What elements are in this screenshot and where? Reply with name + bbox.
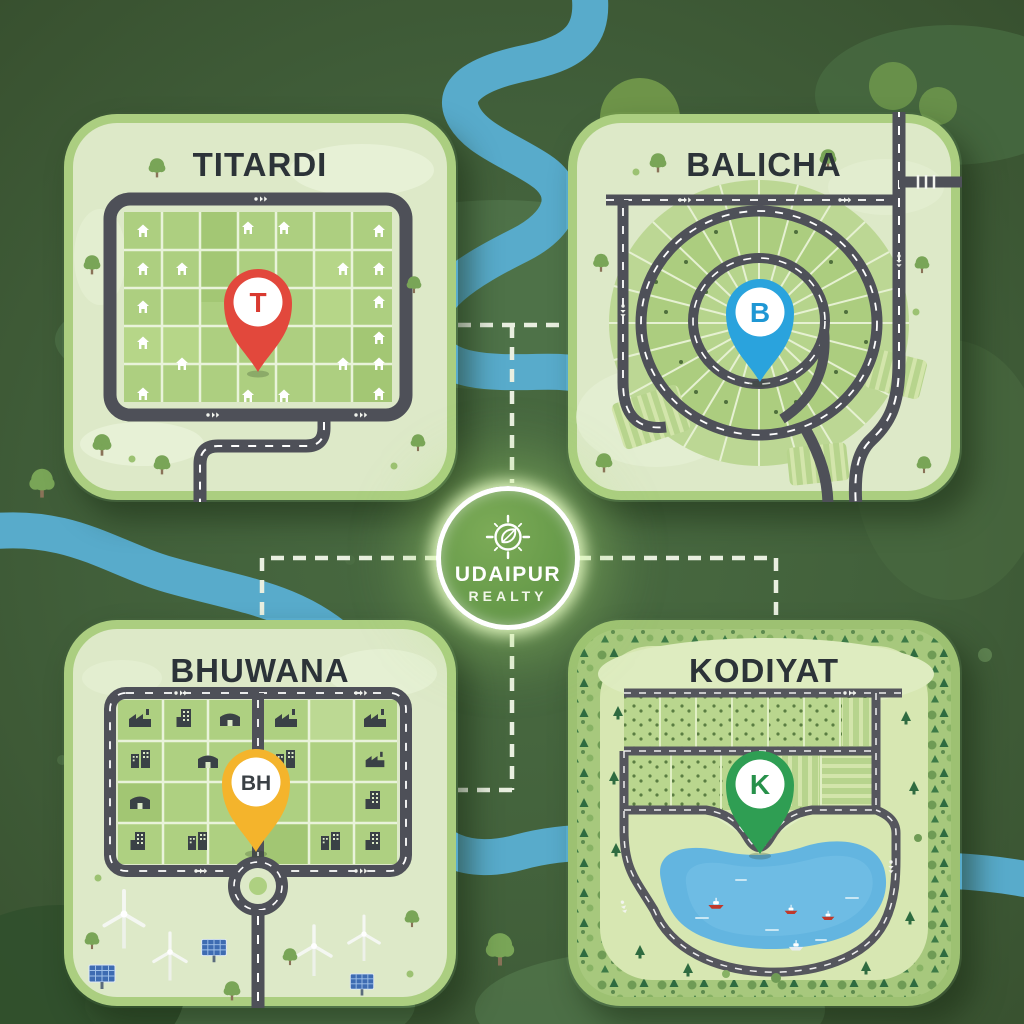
bhuwana-pin-letter: BH <box>241 772 271 795</box>
badge-title: UDAIPUR <box>455 563 561 587</box>
bhuwana-title: BHUWANA <box>62 652 458 690</box>
titardi-card[interactable]: T TITARDI <box>62 112 458 502</box>
kodiyat-pin-letter: K <box>750 769 770 800</box>
kodiyat-title: KODIYAT <box>566 652 962 690</box>
balicha-pin-letter: B <box>750 297 770 328</box>
compass-icon <box>484 513 532 561</box>
badge-subtitle: REALTY <box>469 588 548 604</box>
titardi-title: TITARDI <box>62 146 458 184</box>
kodiyat-card[interactable]: K KODIYAT <box>566 618 962 1008</box>
bhuwana-card[interactable]: BH BHUWANA <box>62 618 458 1008</box>
poster-stage: T TITARDI <box>0 0 1024 1024</box>
udaipur-realty-map-poster: { "poster": { "brand_line1": "UDAIPUR", … <box>0 0 1024 1024</box>
udaipur-realty-badge[interactable]: UDAIPUR REALTY <box>436 486 580 630</box>
balicha-card[interactable]: B BALICHA <box>566 112 962 502</box>
balicha-title: BALICHA <box>566 146 962 184</box>
titardi-pin-letter: T <box>249 287 266 318</box>
